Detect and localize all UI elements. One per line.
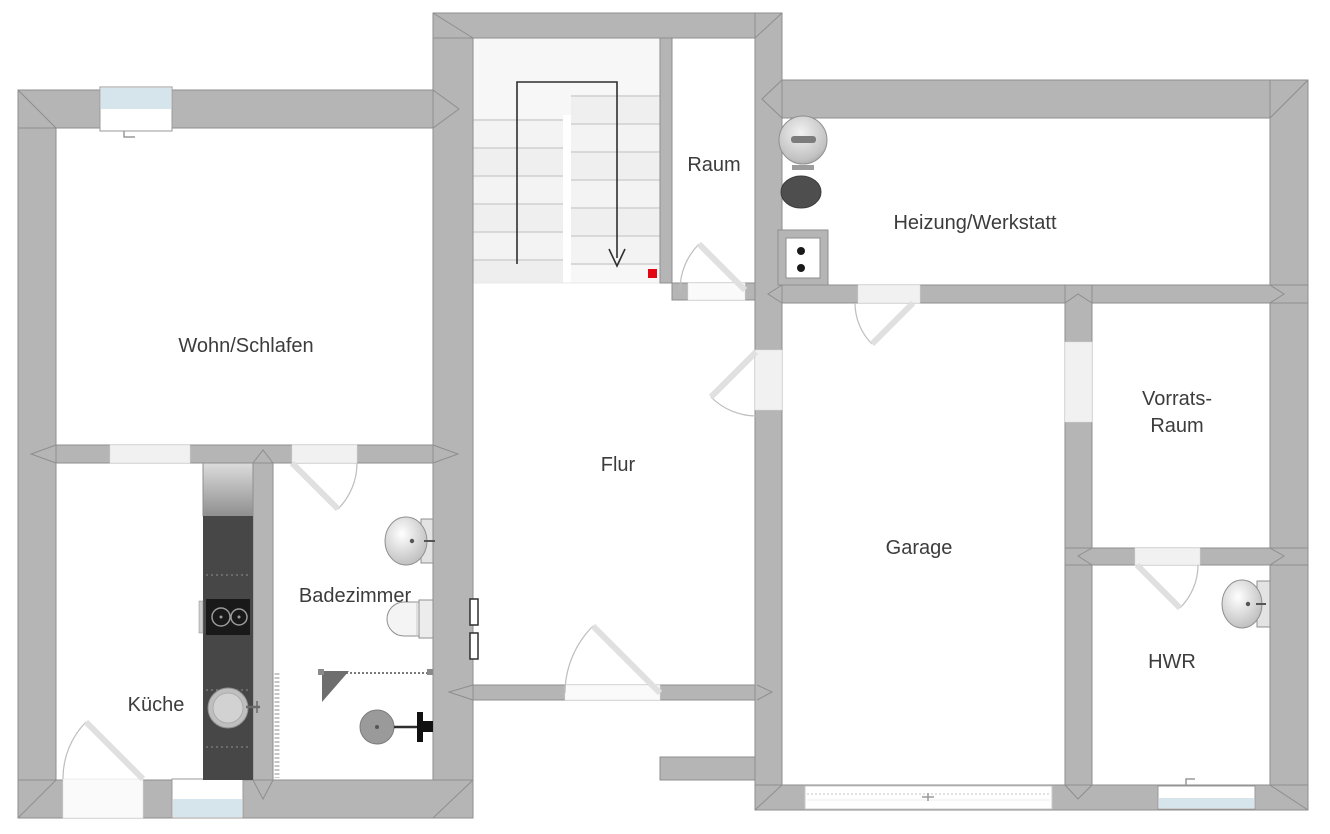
cooktop — [206, 599, 250, 635]
refrigerator — [203, 463, 253, 516]
wall-kueche-bad-divider — [253, 463, 273, 780]
stairwell-gap — [563, 115, 571, 283]
badezimmer-doorway — [292, 445, 357, 463]
entry-doorway — [565, 685, 660, 700]
garage-door — [805, 786, 1052, 809]
kueche-doorway — [110, 445, 190, 463]
wall-top-exterior-left — [18, 90, 433, 128]
chimney-flue — [778, 230, 828, 285]
room-label-hwr: HWR — [1148, 651, 1196, 673]
bathroom-sink — [385, 517, 435, 565]
wall-stairs-raum-divider — [660, 38, 672, 283]
wall-left-exterior — [18, 90, 56, 818]
vorrats-hwr-doorway — [1135, 548, 1200, 565]
fuel-tank — [781, 176, 821, 208]
room-label-garage: Garage — [886, 537, 953, 559]
room-label-vorrats-line2: Raum — [1150, 415, 1203, 437]
wall-stair-block-top — [433, 13, 782, 38]
window-wohn-schlafen — [100, 87, 172, 137]
wall-heizung-top — [782, 80, 1308, 118]
red-position-marker — [648, 269, 657, 278]
wall-right-exterior — [1270, 80, 1308, 810]
room-label-wohn-schlafen: Wohn/Schlafen — [178, 335, 313, 357]
room-label-heizung-werkstatt: Heizung/Werkstatt — [893, 212, 1056, 234]
window-kueche — [172, 779, 243, 818]
hwr-sink — [1222, 580, 1270, 628]
room-label-raum: Raum — [687, 154, 740, 176]
floor-plan: Wohn/Schlafen Raum Heizung/Werkstatt Flu… — [0, 0, 1330, 834]
staircase — [473, 38, 660, 283]
flur-garage-doorway — [755, 350, 782, 410]
oven-handle-icon — [199, 601, 203, 633]
wall-center-left — [433, 13, 473, 780]
room-label-badezimmer: Badezimmer — [299, 585, 412, 607]
room-label-kueche: Küche — [128, 694, 185, 716]
room-label-flur: Flur — [601, 454, 636, 476]
kitchen-counter — [199, 463, 260, 780]
room-label-vorrats-line1: Vorrats- — [1142, 388, 1212, 410]
wall-exterior-stub — [660, 757, 755, 780]
heizung-garage-doorway — [858, 285, 920, 303]
kueche-exterior-door — [63, 779, 143, 818]
vorrats-doorway — [1065, 342, 1092, 422]
